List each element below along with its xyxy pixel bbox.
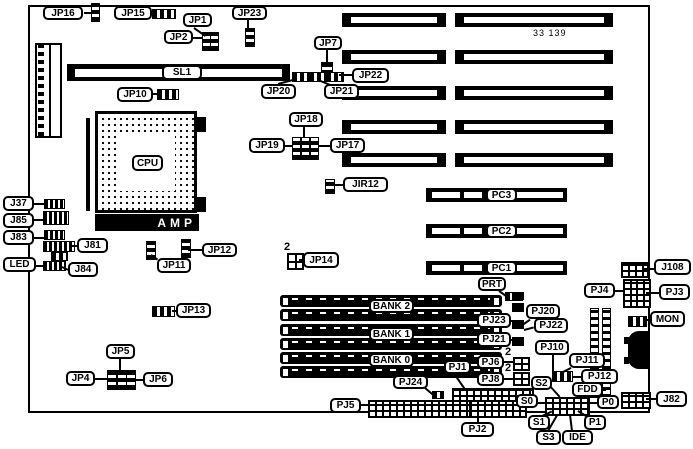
label-p0: P0: [597, 395, 619, 409]
pj8-jumper: [513, 372, 530, 386]
jp23-jumper: [245, 28, 255, 47]
label-j37: J37: [3, 196, 34, 211]
j85-header: [43, 211, 69, 225]
j83-header: [44, 230, 65, 240]
label-j81: J81: [77, 238, 108, 253]
label-jp17: JP17: [330, 138, 365, 153]
label-jp22: JP22: [352, 68, 389, 83]
label-p1: P1: [584, 415, 606, 430]
label-bank0: BANK 0: [369, 353, 414, 367]
leader-line: [33, 203, 45, 205]
isa-slot: [455, 153, 613, 167]
label-pj3: PJ3: [659, 284, 690, 300]
socket-notch: [197, 117, 206, 132]
pj-header: [512, 303, 524, 312]
label-jir12: JIR12: [343, 177, 388, 192]
din-tab: [624, 337, 629, 344]
label-jp5: JP5: [106, 344, 135, 359]
j108-connector: [621, 262, 649, 278]
label-jp6: JP6: [143, 372, 173, 387]
label-jp11: JP11: [157, 258, 191, 273]
label-jp20: JP20: [261, 84, 296, 99]
label-bank2: BANK 2: [369, 299, 414, 313]
jp2-jumper: [210, 32, 219, 51]
jp17-jumper: [310, 137, 319, 160]
label-s3: S3: [536, 430, 561, 445]
jp16-jumper: [91, 3, 100, 22]
j84-header-upper: [51, 252, 68, 261]
label-pj21: PJ21: [477, 332, 511, 347]
label-sl1: SL1: [162, 65, 202, 80]
label-jp19: JP19: [249, 138, 285, 153]
jir12-jumper: [325, 179, 335, 194]
label-j83: J83: [3, 230, 34, 245]
leader-line: [326, 49, 328, 63]
label-led: LED: [3, 257, 36, 272]
pj5-connector: [368, 400, 471, 418]
isa-slot: [455, 50, 613, 64]
label-jp7: JP7: [314, 36, 342, 50]
label-jp23: JP23: [232, 6, 267, 20]
label-jp13: JP13: [176, 303, 211, 318]
label-jp4: JP4: [66, 371, 95, 386]
din-tab: [624, 357, 629, 364]
label-pc2: PC2: [486, 224, 517, 238]
leader-line: [646, 292, 660, 294]
jp10-jumper: [157, 89, 179, 100]
leader-line: [537, 402, 546, 404]
leader-line: [360, 404, 369, 406]
leader-line: [552, 354, 554, 372]
leader-line: [569, 414, 573, 431]
label-s0: S0: [516, 394, 538, 408]
label-jp18: JP18: [289, 112, 323, 127]
label-jp15: JP15: [114, 6, 152, 20]
j37-header: [44, 199, 65, 209]
label-pj5: PJ5: [330, 398, 361, 413]
label-s1: S1: [528, 415, 550, 430]
motherboard-diagram: 33 139 SL1 PC3 PC2 PC1 PRT: [0, 0, 693, 449]
label-prt: PRT: [478, 277, 506, 291]
leader-line: [84, 12, 92, 14]
leader-line: [33, 237, 45, 239]
jp14-pin2-marker: 2: [284, 241, 290, 253]
label-bank1: BANK 1: [369, 327, 414, 341]
label-pj20: PJ20: [526, 304, 560, 319]
leader-line: [188, 249, 203, 251]
j82-connector: [621, 392, 651, 409]
isa-slot: [342, 13, 446, 27]
label-jp16: JP16: [43, 6, 83, 20]
isa-slot: [455, 120, 613, 134]
fdd-connector-column: [602, 308, 611, 398]
label-j108: J108: [654, 259, 691, 275]
isa-slot: [342, 153, 446, 167]
label-s2: S2: [531, 376, 552, 390]
jp18-jumper: [301, 137, 310, 160]
label-pj23: PJ23: [477, 313, 511, 328]
label-fdd: FDD: [572, 382, 603, 397]
isa-slot: [342, 50, 446, 64]
label-pc1: PC1: [486, 261, 517, 275]
label-pj4: PJ4: [584, 283, 615, 298]
leader-line: [94, 378, 108, 380]
pj8-pin2-marker: 2: [505, 362, 511, 374]
label-jp12: JP12: [202, 243, 237, 257]
label-mon: MON: [650, 311, 685, 327]
socket-notch: [197, 197, 206, 212]
mon-header: [628, 316, 647, 327]
leader-line: [339, 74, 353, 76]
label-pj1: PJ1: [444, 360, 471, 374]
leader-line: [33, 219, 44, 221]
isa-slot: [455, 86, 613, 100]
label-pj10: PJ10: [535, 340, 569, 355]
pj6-pin2-marker: 2: [505, 346, 511, 358]
jp4-jumper: [107, 370, 117, 390]
label-jp1: JP1: [183, 13, 212, 27]
leader-line: [192, 37, 202, 39]
label-pj2: PJ2: [461, 422, 494, 437]
board-number: 33 139: [533, 28, 567, 38]
amp-voltage-regulator: AMP: [95, 214, 199, 231]
pj-header: [512, 292, 524, 300]
label-cpu: CPU: [132, 155, 163, 171]
label-jp10: JP10: [117, 87, 153, 102]
edge-connector: [35, 43, 62, 138]
leader-line: [303, 126, 305, 138]
label-j82: J82: [656, 391, 687, 407]
zif-lever: [86, 118, 90, 211]
label-j85: J85: [3, 213, 34, 228]
jp19-jumper: [292, 137, 301, 160]
jp14-jumper: [287, 253, 304, 270]
label-pc3: PC3: [486, 188, 517, 202]
isa-slot: [455, 13, 613, 27]
jp15-jumper: [152, 9, 176, 19]
pj6-jumper: [513, 357, 530, 371]
label-pj8: PJ8: [477, 372, 504, 386]
label-ide: IDE: [562, 430, 593, 445]
label-pj11: PJ11: [569, 353, 605, 368]
j81-header: [43, 241, 75, 252]
label-jp2: JP2: [164, 30, 193, 44]
label-j84: J84: [68, 262, 98, 277]
label-jp21: JP21: [324, 84, 359, 99]
label-pj24: PJ24: [393, 375, 428, 389]
pj-header: [512, 337, 524, 346]
label-pj22: PJ22: [534, 318, 568, 333]
isa-slot: [342, 120, 446, 134]
label-pj6: PJ6: [477, 355, 504, 369]
leader-line: [119, 358, 121, 371]
keyboard-din-connector: [628, 331, 650, 369]
label-jp14: JP14: [303, 252, 339, 268]
